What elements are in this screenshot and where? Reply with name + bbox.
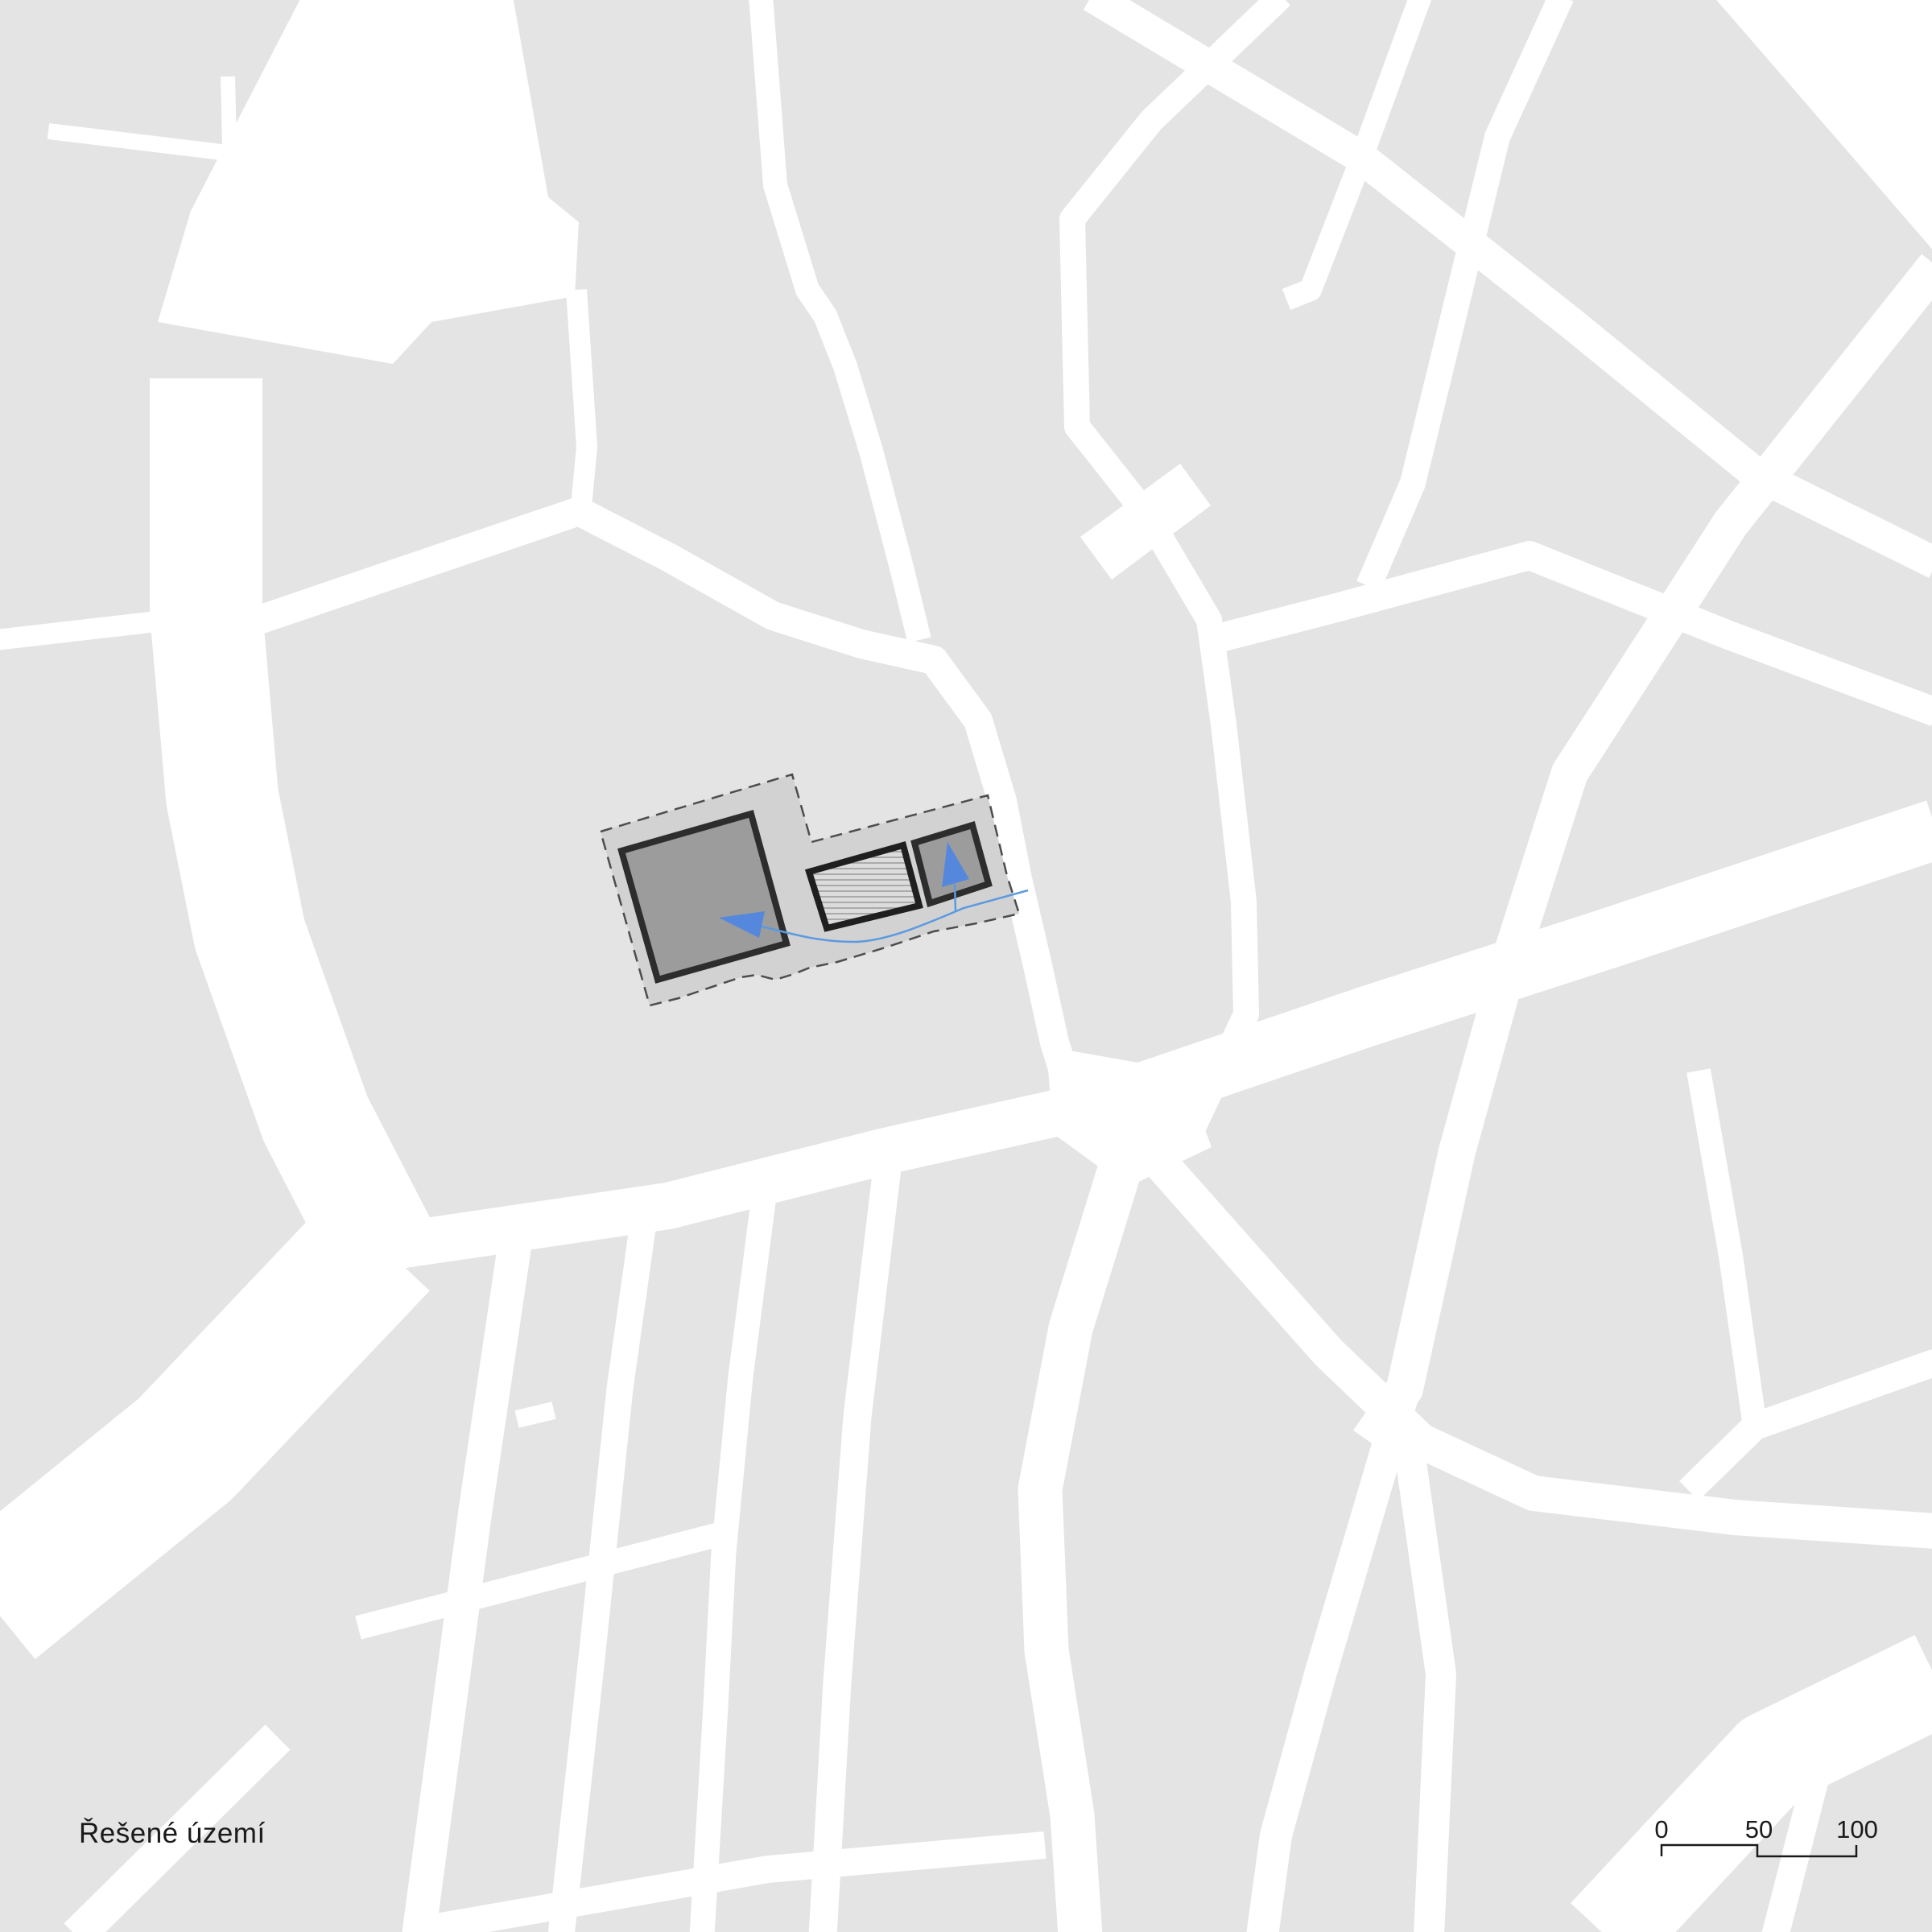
scale-label-0: 0 [1654,1815,1668,1843]
site-plan-map: 0 50 100 Řešené území [0,0,1932,1932]
map-label: Řešené území [79,1818,266,1850]
scale-label-50: 50 [1745,1815,1773,1843]
street-stub [517,1410,554,1419]
flow-line-vertical [955,884,956,911]
street [576,290,587,515]
map-svg: 0 50 100 [0,0,1932,1932]
street [228,76,229,145]
scale-label-100: 100 [1836,1815,1878,1843]
